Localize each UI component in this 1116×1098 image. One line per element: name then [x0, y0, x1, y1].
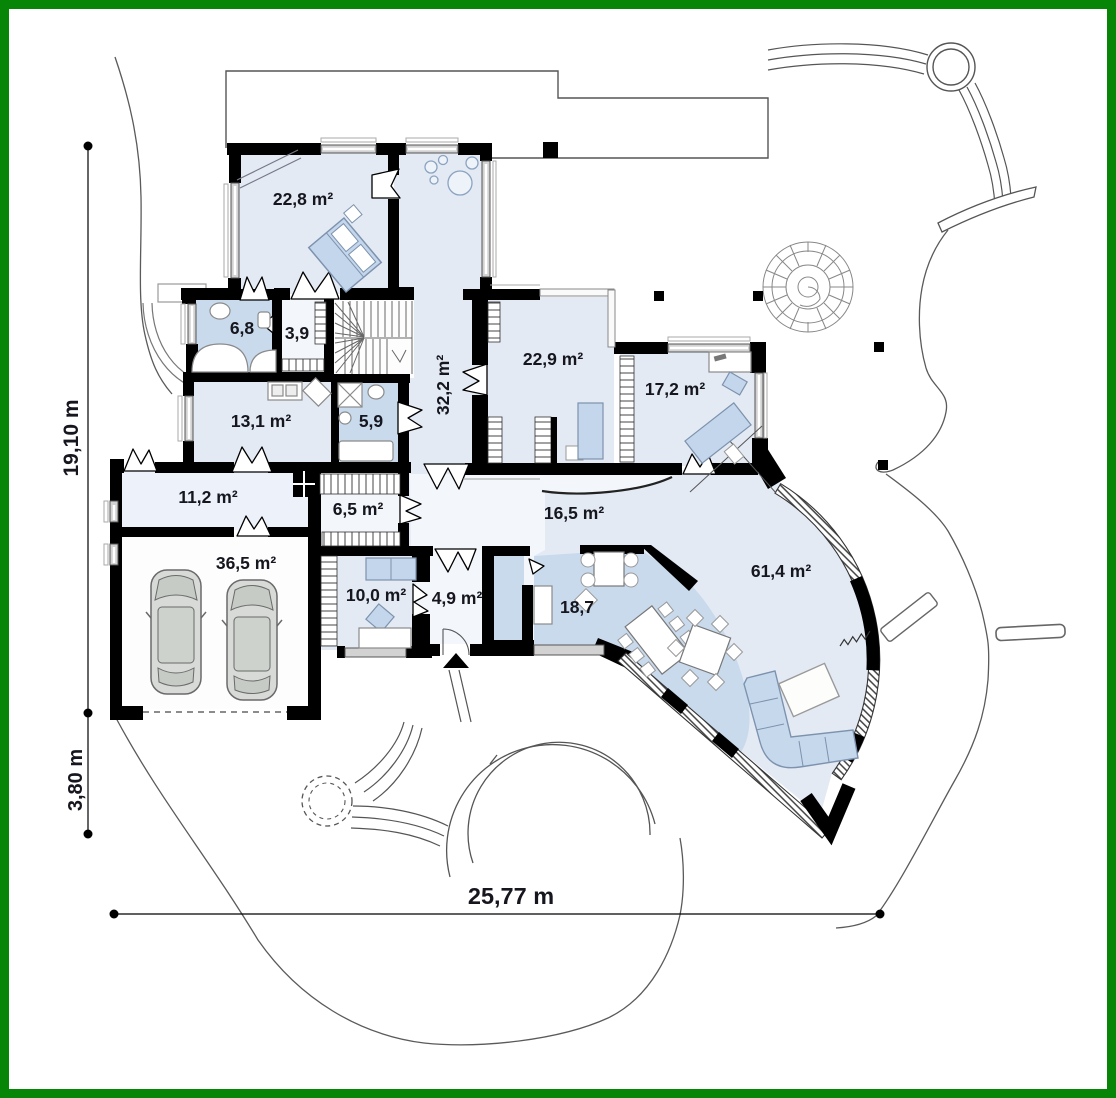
svg-text:18,7: 18,7 — [560, 597, 594, 617]
svg-text:13,1 m²: 13,1 m² — [231, 411, 291, 431]
svg-text:19,10 m: 19,10 m — [60, 399, 83, 476]
svg-text:5,9: 5,9 — [359, 411, 384, 431]
svg-text:4,9 m²: 4,9 m² — [432, 588, 483, 608]
svg-text:6,5 m²: 6,5 m² — [333, 499, 384, 519]
svg-text:32,2 m²: 32,2 m² — [433, 355, 453, 415]
svg-text:25,77 m: 25,77 m — [468, 883, 554, 909]
svg-text:3,80 m: 3,80 m — [65, 749, 87, 811]
svg-text:10,0 m²: 10,0 m² — [346, 585, 406, 605]
svg-text:22,8 m²: 22,8 m² — [273, 189, 333, 209]
svg-text:3,9: 3,9 — [285, 323, 310, 343]
svg-text:36,5 m²: 36,5 m² — [216, 553, 276, 573]
svg-text:6,8: 6,8 — [230, 318, 255, 338]
svg-text:11,2 m²: 11,2 m² — [178, 487, 238, 507]
svg-text:16,5 m²: 16,5 m² — [544, 503, 604, 523]
svg-text:61,4 m²: 61,4 m² — [751, 561, 811, 581]
svg-text:22,9 m²: 22,9 m² — [523, 349, 583, 369]
svg-text:17,2 m²: 17,2 m² — [645, 379, 705, 399]
